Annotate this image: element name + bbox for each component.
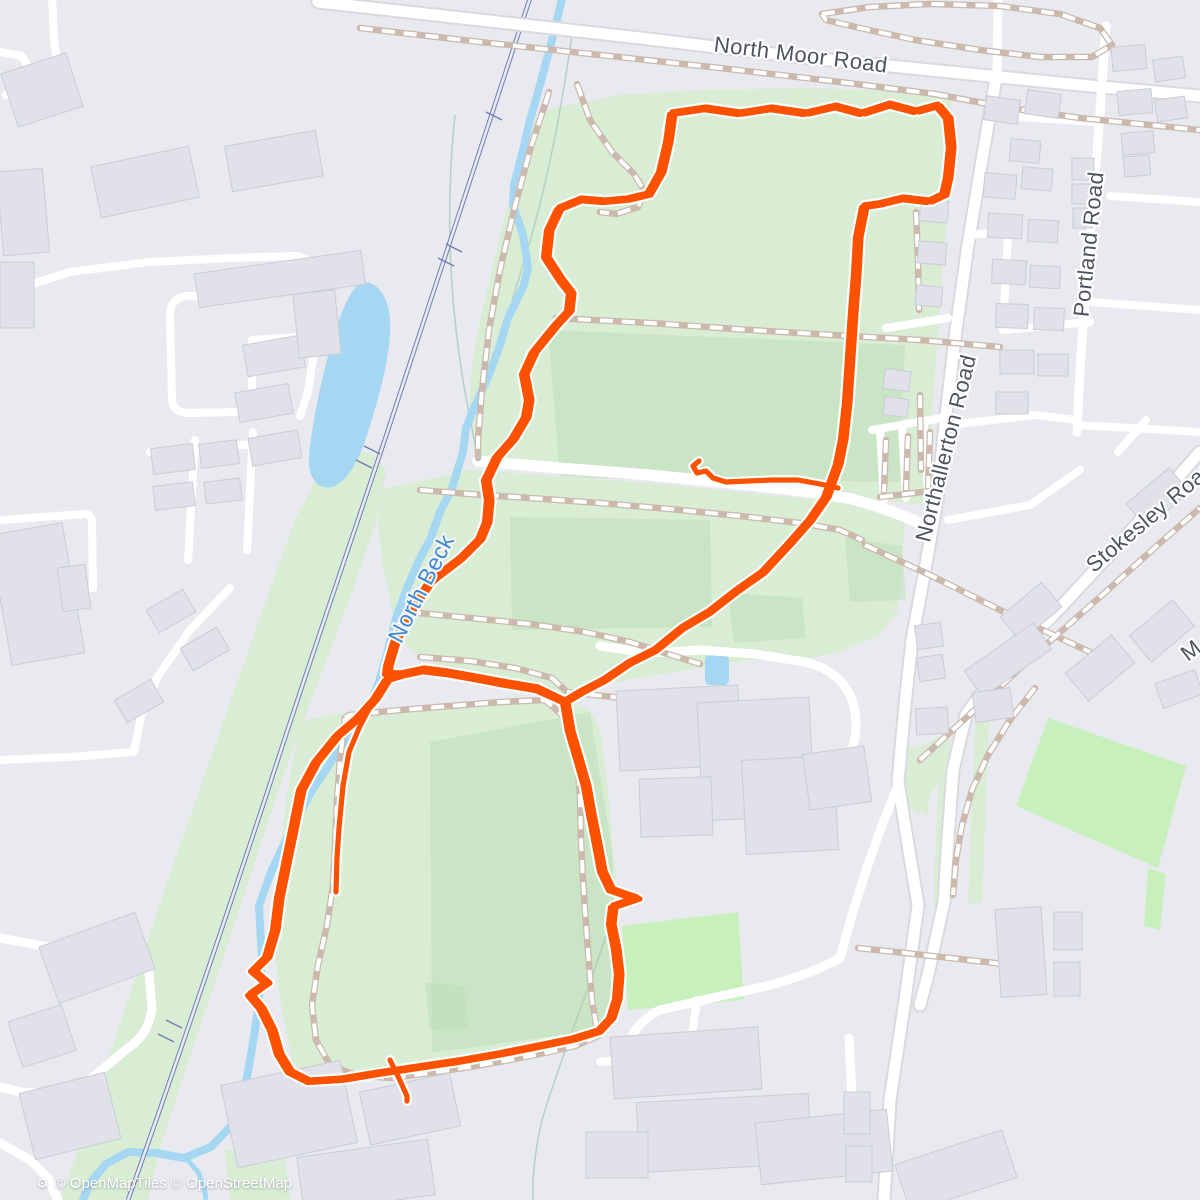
map-canvas[interactable]: North Moor Road Northallerton Road Portl… bbox=[0, 0, 1200, 1200]
map-attribution: ⚙ © OpenMapTiles © OpenStreetMap bbox=[36, 1175, 292, 1192]
small-pond bbox=[705, 655, 729, 685]
attribution-text[interactable]: © OpenMapTiles © OpenStreetMap bbox=[55, 1175, 293, 1192]
activity-map[interactable]: North Moor Road Northallerton Road Portl… bbox=[0, 0, 1200, 1200]
gear-icon: ⚙ bbox=[36, 1175, 49, 1192]
